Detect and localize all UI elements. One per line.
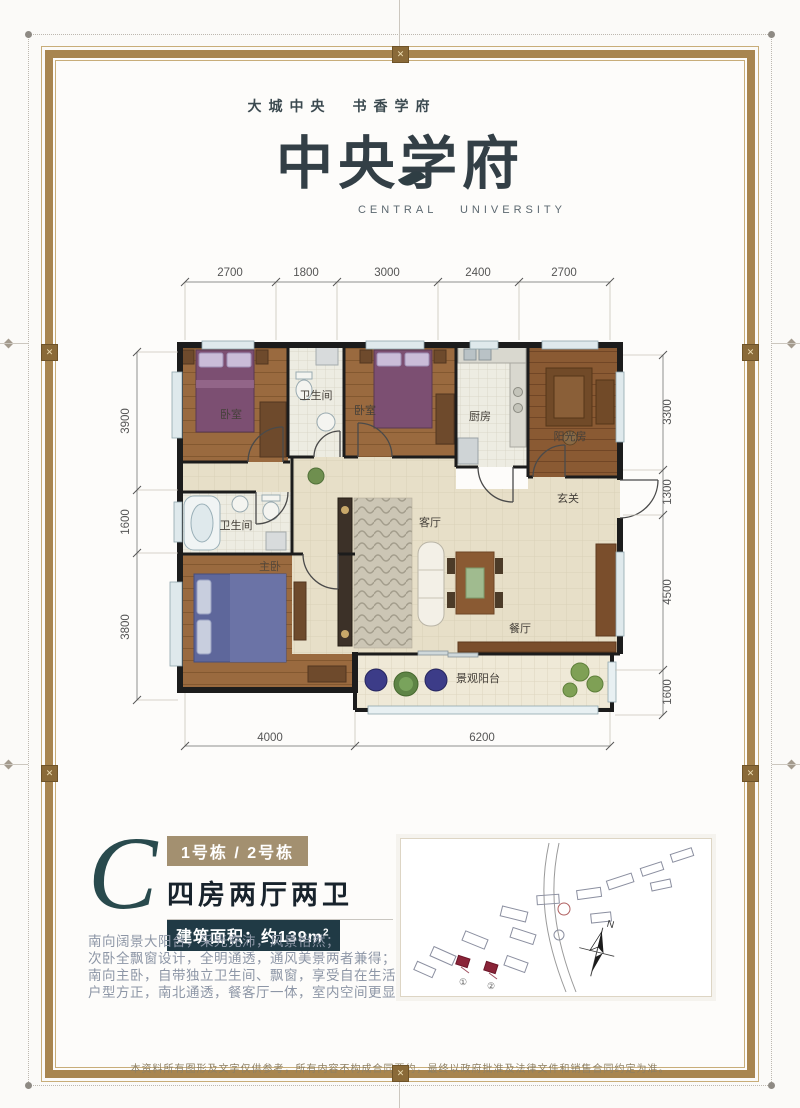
dim-value: 3800: [120, 614, 132, 640]
room-label: 客厅: [419, 515, 441, 529]
room-label: 餐厅: [509, 621, 531, 635]
logo-block: 大城中央 书香学府 中央学府 CENTRAL UNIVERSITY: [0, 96, 800, 216]
corner-dot-icon: [768, 31, 775, 38]
highlighted-buildings: ① ②: [456, 955, 498, 991]
frame-ornament-icon: ✕: [392, 46, 409, 63]
dim-value: 2400: [465, 267, 491, 279]
frame-stub: [399, 0, 400, 50]
frame-stub: [0, 343, 28, 344]
frame-ornament-icon: ✕: [742, 765, 759, 782]
poster-page: ✕ ✕ ✕ ✕ ✕ ✕ 大城中央 书香学府 中央学府 CENTRAL UNIVE…: [0, 0, 800, 1108]
dim-value: 1300: [662, 479, 674, 505]
unit-letter: C: [88, 822, 157, 926]
road: [544, 843, 576, 992]
dimension-left: 3900 1600 3800: [120, 348, 178, 704]
room-label: 主卧: [259, 560, 281, 573]
dim-value: 3000: [374, 267, 400, 279]
building-marker-2: ②: [487, 981, 495, 991]
frame-ornament-icon: ✕: [742, 344, 759, 361]
frame-stub: [0, 764, 28, 765]
frame-stub: [772, 343, 800, 344]
frame-stub: [399, 1078, 400, 1108]
building-badge: 1号栋 / 2号栋: [167, 836, 308, 866]
room-label: 厨房: [469, 410, 491, 423]
desc-line-3: 南向主卧，自带独立卫生间、飘窗，享受自在生活；: [88, 967, 438, 984]
desc-line-2: 次卧全飘窗设计，全明通透，通风美景两者兼得；: [88, 950, 438, 967]
dim-value: 2700: [551, 267, 577, 279]
north-label: N: [605, 919, 615, 931]
corner-dot-icon: [768, 1082, 775, 1089]
logo-tagline: 大城中央 书香学府: [0, 96, 742, 116]
dim-value: 3300: [662, 399, 674, 425]
page-title: 中央学府: [0, 118, 800, 200]
room-label: 卫生间: [300, 388, 333, 402]
frame-ornament-icon: ✕: [392, 1065, 409, 1082]
description-block: 南向阔景大阳台，采光充沛，风景怡然； 次卧全飘窗设计，全明通透，通风美景两者兼得…: [88, 933, 438, 1001]
room-label: 卫生间: [220, 518, 253, 532]
tv-wall: [338, 498, 412, 648]
room-label: 景观阳台: [456, 671, 500, 685]
dim-value: 4500: [662, 579, 674, 605]
dim-value: 6200: [469, 732, 495, 744]
sofa: [418, 542, 444, 626]
room-label: 玄关: [557, 491, 579, 505]
corner-dot-icon: [25, 31, 32, 38]
room-label: 卧室: [354, 403, 376, 417]
dim-value: 3900: [120, 408, 132, 434]
frame-ornament-icon: ✕: [41, 344, 58, 361]
site-plan-inset: ① ② N: [400, 838, 712, 997]
building-marker-1: ①: [459, 977, 467, 987]
dim-value: 1600: [120, 509, 132, 535]
site-plan-sketch: ① ② N: [401, 839, 711, 996]
room-label: 卧室: [220, 407, 242, 421]
frame-stub: [772, 764, 800, 765]
dimension-top: 2700 1800 3000 2400 2700: [181, 267, 614, 340]
desc-line-4: 户型方正，南北通透，餐客厅一体，室内空间更显敞阔。: [88, 984, 438, 1001]
dim-value: 4000: [257, 732, 283, 744]
logo-subtitle: CENTRAL UNIVERSITY: [62, 204, 800, 216]
corner-dot-icon: [25, 1082, 32, 1089]
desc-line-1: 南向阔景大阳台，采光充沛，风景怡然；: [88, 933, 438, 950]
dim-value: 2700: [217, 267, 243, 279]
floor-plan: 卧室 卫生间 卧室 厨房 阳光房 玄关 卫生间 主卧 客厅 餐厅 景观阳台: [118, 252, 682, 764]
buildings: [414, 848, 694, 978]
frame-ornament-icon: ✕: [41, 765, 58, 782]
dim-value: 1800: [293, 267, 319, 279]
layout-type: 四房两厅两卫: [167, 873, 393, 920]
dim-value: 1600: [662, 679, 674, 705]
room-label: 阳光房: [554, 429, 587, 443]
north-arrow-icon: N: [573, 914, 622, 981]
